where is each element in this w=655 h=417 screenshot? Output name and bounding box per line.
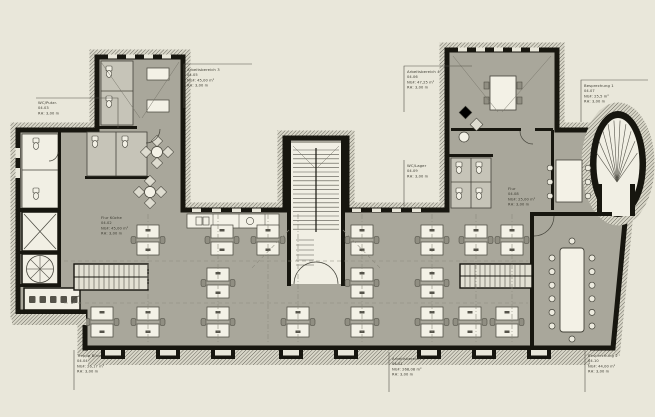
chair [549, 269, 555, 275]
room-height: RH: 3,00 m [407, 86, 429, 90]
chair [549, 255, 555, 261]
office-stair-left [74, 264, 148, 290]
chair [589, 323, 595, 329]
monitor [468, 311, 473, 314]
chair [549, 296, 555, 302]
chair [589, 269, 595, 275]
room-area: NGF: 44,00 m² [588, 364, 616, 368]
room-area: NGF: 45,00 m² [101, 226, 129, 230]
chair [415, 237, 420, 244]
window [252, 209, 261, 213]
chair [589, 282, 595, 288]
wc-fixture [92, 141, 97, 148]
room-name: Arbeitsbereich 3 [187, 67, 220, 72]
chair [415, 319, 420, 326]
floor-plan: WC/Putzr. 04.03 RH: 3,00 m Arbeitsbereic… [0, 0, 655, 417]
floor-plan-svg: WC/Putzr. 04.03 RH: 3,00 m Arbeitsbereic… [0, 0, 655, 417]
chair [201, 280, 206, 287]
chair [345, 237, 350, 244]
wc-fixture [456, 162, 462, 167]
room-height: RH: 3,00 m [508, 203, 530, 207]
chair [569, 238, 575, 244]
dormer-window [105, 350, 121, 356]
spiral-stair [27, 256, 54, 283]
dormer-window [338, 350, 354, 356]
chair [549, 309, 555, 315]
chair [374, 319, 379, 326]
chair [589, 309, 595, 315]
window [412, 209, 421, 213]
room-code: 04.08 [508, 192, 519, 196]
chair [524, 237, 529, 244]
chair [444, 237, 449, 244]
bench-chair [40, 296, 47, 303]
room-area: NGF: 25,5 m² [584, 94, 609, 98]
chair [547, 193, 553, 199]
chair [519, 319, 524, 326]
chair [585, 179, 591, 185]
chair [281, 319, 286, 326]
chair [549, 282, 555, 288]
bench-chair [29, 296, 36, 303]
bench-chair [50, 296, 57, 303]
dormer-window [215, 350, 231, 356]
room-code: 04.10 [588, 359, 599, 363]
room-name: WC/Lager [407, 163, 427, 168]
dormer-window [531, 350, 547, 356]
chair [374, 280, 379, 287]
chair [160, 319, 165, 326]
wc-fixture [33, 138, 39, 143]
window [16, 148, 21, 158]
room-height: RH: 3,00 m [187, 84, 209, 88]
chair [131, 237, 136, 244]
chair [345, 280, 350, 287]
chair [415, 280, 420, 287]
window [372, 209, 381, 213]
chair [131, 319, 136, 326]
window [108, 55, 117, 59]
wc-fixture [106, 96, 112, 101]
room-height: RH: 3,00 m [77, 370, 99, 374]
chair [482, 319, 487, 326]
room-name: Flur Küche [101, 215, 123, 220]
chair [488, 237, 493, 244]
chair [444, 280, 449, 287]
chair [280, 237, 285, 244]
monitor [468, 331, 473, 334]
room-code: 04.07 [584, 89, 595, 93]
wc-fixture [476, 162, 482, 167]
wc-room [22, 134, 58, 208]
lounge-table [145, 187, 156, 198]
chair [459, 237, 464, 244]
wc-fixture [106, 101, 111, 108]
room-name: Treppe Büro [76, 353, 101, 358]
room-area: NGF: 45,00 m² [187, 78, 215, 82]
wc-fixture [476, 167, 481, 174]
window [16, 168, 21, 178]
room-code: 04.03 [38, 106, 49, 110]
wc-fixture [456, 193, 461, 200]
window [352, 209, 361, 213]
window [392, 209, 401, 213]
room-name: Flur [508, 186, 516, 191]
chair [589, 296, 595, 302]
wc-fixture [122, 136, 128, 141]
chair [374, 237, 379, 244]
chair [549, 323, 555, 329]
monitor [220, 249, 225, 252]
room-area: NGF: 25,00 m² [508, 197, 536, 201]
chair [444, 319, 449, 326]
chair [251, 237, 256, 244]
room-area: NGF: 26,17 m² [77, 364, 105, 368]
window [512, 48, 521, 52]
room-name: Arbeitsbereich 4 [407, 69, 440, 74]
wc-fixture [33, 188, 39, 193]
window [144, 55, 153, 59]
room-code: 04.06 [407, 75, 418, 79]
room-name: WC/Putzr. [38, 100, 57, 105]
room-code: 04.02 [101, 221, 112, 225]
window [476, 48, 485, 52]
chair [569, 336, 575, 342]
tower-landing [602, 186, 632, 216]
room-code: 04.04 [77, 359, 88, 363]
window [192, 209, 201, 213]
room-area: NGF: 47,25 m² [407, 80, 435, 84]
window [232, 209, 241, 213]
chair [453, 319, 458, 326]
monitor [505, 311, 510, 314]
dormer-window [160, 350, 176, 356]
chair [585, 193, 591, 199]
wc-fixture [92, 136, 98, 141]
lounge-table [152, 147, 163, 158]
dormer-window [476, 350, 492, 356]
chair [495, 237, 500, 244]
room-code: 04.05 [187, 73, 198, 77]
chair [310, 319, 315, 326]
chair [585, 165, 591, 171]
central-stairwell [291, 143, 341, 284]
room-height: RH: 3,00 m [38, 111, 60, 115]
room-height: RH: 3,00 m [584, 100, 606, 104]
chair [345, 319, 350, 326]
bench-chair [61, 296, 68, 303]
dormer-window [421, 350, 437, 356]
window [494, 48, 503, 52]
room-area: NGF: 268,08 m² [392, 367, 422, 371]
chair [547, 165, 553, 171]
window [162, 55, 171, 59]
room-height: RH: 3,00 m [407, 174, 429, 178]
chair [205, 237, 210, 244]
monitor [100, 311, 105, 314]
window [530, 48, 539, 52]
round-stair-tower [587, 108, 649, 220]
window [126, 55, 135, 59]
room-code: 04.09 [407, 169, 418, 173]
chair [490, 319, 495, 326]
wc-fixture [476, 188, 482, 193]
room-name: Besprechung 2 [588, 353, 618, 358]
chair [547, 179, 553, 185]
chair [201, 319, 206, 326]
room-height: RH: 3,00 m [588, 370, 610, 374]
room-code: 04.01 [392, 362, 403, 366]
wc-fixture [33, 193, 38, 200]
wc-fixture [122, 141, 127, 148]
room-name: Besprechung 1 [584, 83, 614, 88]
monitor [220, 229, 225, 232]
chair [230, 280, 235, 287]
chair [160, 237, 165, 244]
dormer-window [283, 350, 299, 356]
monitor [505, 331, 510, 334]
window [212, 209, 221, 213]
chair [230, 319, 235, 326]
wc-fixture [456, 188, 462, 193]
wc-fixture [476, 193, 481, 200]
room-height: RH: 3,00 m [392, 373, 414, 377]
monitor [100, 331, 105, 334]
wc-fixture [33, 143, 38, 150]
office-stair-right [460, 264, 532, 288]
chair [234, 237, 239, 244]
wc-fixture [456, 167, 461, 174]
chair [589, 255, 595, 261]
room-height: RH: 3,00 m [101, 232, 123, 236]
chair [114, 319, 119, 326]
window [458, 48, 467, 52]
room-name: Arbeitsbereich 1 [392, 356, 425, 361]
